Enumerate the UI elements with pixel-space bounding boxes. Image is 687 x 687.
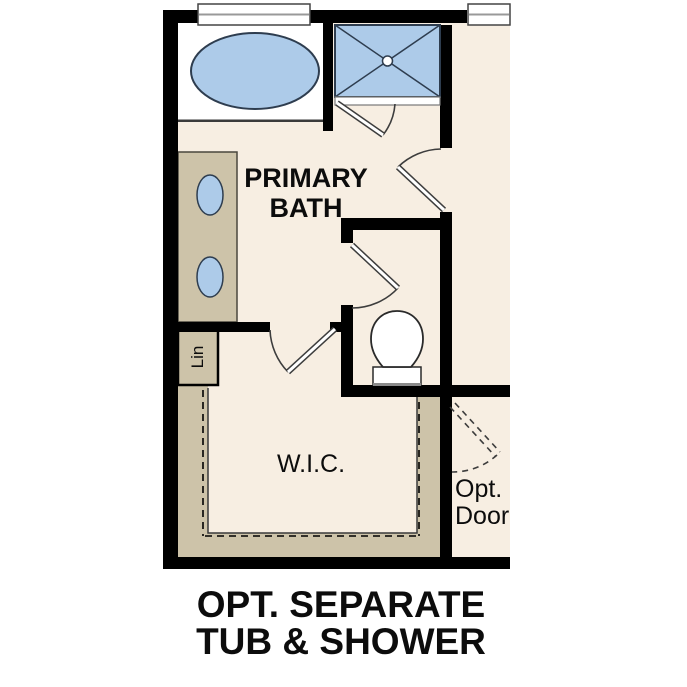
- wall-left: [163, 10, 178, 569]
- wall-right-upper: [440, 25, 452, 148]
- sink-bottom-icon: [197, 257, 223, 297]
- wic-label: W.I.C.: [277, 450, 345, 478]
- wall-wc-west-upper: [341, 218, 353, 243]
- vanity-cabinet: [178, 152, 237, 322]
- window-tub: [198, 4, 310, 25]
- tub-deck-edge: [178, 120, 333, 123]
- opt-door-label-line1: Opt.: [455, 475, 502, 503]
- wall-tub-shower-divider: [323, 23, 333, 131]
- shower-icon: [335, 25, 440, 105]
- wall-vanity-south: [170, 322, 270, 332]
- wall-wc-west-lower: [341, 305, 353, 397]
- floor-plan-page: PRIMARY BATH W.I.C. Lin Opt. Door OPT. S…: [0, 0, 687, 687]
- linen-label: Lin: [188, 346, 207, 369]
- floor-plan-drawing: PRIMARY BATH W.I.C. Lin Opt. Door OPT. S…: [0, 0, 687, 687]
- caption-line2: TUB & SHOWER: [196, 621, 486, 662]
- window-right: [468, 4, 510, 25]
- wall-bottom: [163, 557, 510, 569]
- wall-wc-north: [341, 218, 452, 230]
- primary-bath-label-line1: PRIMARY: [244, 163, 368, 193]
- toilet-icon: [371, 311, 423, 385]
- sink-top-icon: [197, 175, 223, 215]
- primary-bath-label-line2: BATH: [270, 193, 343, 223]
- opt-door-label-line2: Door: [455, 502, 509, 530]
- shower-glass-panel: [335, 97, 440, 105]
- caption-line1: OPT. SEPARATE: [197, 584, 486, 625]
- wall-wc-south: [341, 385, 510, 397]
- bathtub-icon: [191, 33, 319, 109]
- shower-drain-icon: [383, 56, 393, 66]
